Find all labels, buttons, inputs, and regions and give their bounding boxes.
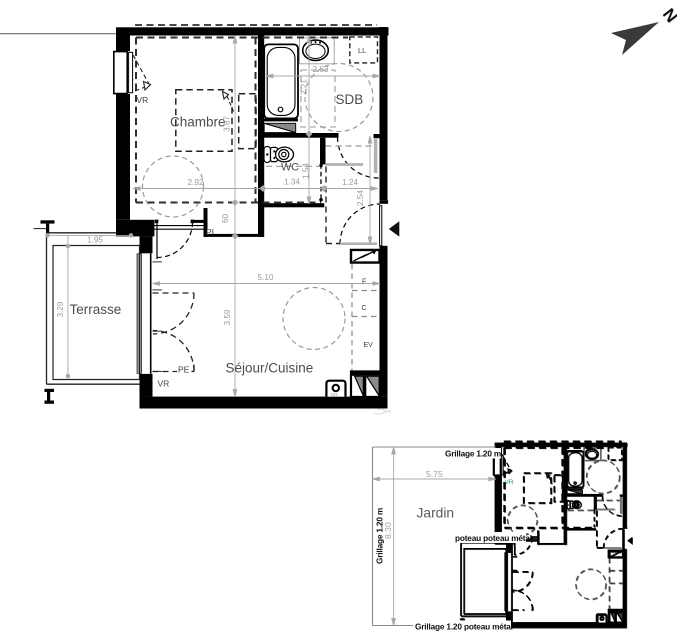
svg-text:PI: PI [206,227,214,237]
svg-text:VR: VR [505,479,514,486]
svg-text:1.24: 1.24 [342,178,358,187]
svg-text:3.87: 3.87 [223,116,232,132]
svg-text:Terrasse: Terrasse [70,302,122,317]
svg-text:60: 60 [221,213,230,223]
svg-text:poteau métal: poteau métal [464,622,513,632]
svg-text:CH: CH [331,392,338,397]
svg-text:EV: EV [364,342,374,349]
svg-text:3.59: 3.59 [223,309,232,325]
svg-text:poteau poteau métal: poteau poteau métal [455,533,532,543]
svg-text:Jardin: Jardin [417,506,455,521]
svg-text:F: F [362,279,366,286]
svg-text:C: C [362,305,367,312]
svg-text:Chambre: Chambre [170,115,226,130]
svg-text:WC: WC [281,162,299,174]
svg-text:VR: VR [158,379,170,389]
svg-text:5.10: 5.10 [258,273,274,282]
svg-text:3.29: 3.29 [56,301,65,317]
svg-text:2.63: 2.63 [313,65,329,74]
svg-text:8.30: 8.30 [383,522,393,539]
svg-text:2.92: 2.92 [188,178,204,187]
svg-text:Grillage 1.20: Grillage 1.20 [415,622,462,632]
svg-text:LL: LL [358,46,366,55]
svg-text:5.75: 5.75 [426,469,443,479]
svg-text:N: N [659,5,677,26]
svg-text:1.34: 1.34 [284,178,300,187]
svg-text:2.54: 2.54 [356,190,365,206]
svg-text:PE: PE [178,365,190,375]
svg-text:2.21: 2.21 [300,79,309,95]
svg-text:SDB: SDB [336,92,364,107]
svg-text:Grillage 1.20 m: Grillage 1.20 m [445,449,501,459]
svg-text:1.95: 1.95 [87,236,103,245]
svg-text:1.54: 1.54 [302,163,311,179]
svg-text:VR: VR [137,95,149,105]
svg-text:Séjour/Cuisine: Séjour/Cuisine [226,361,314,376]
